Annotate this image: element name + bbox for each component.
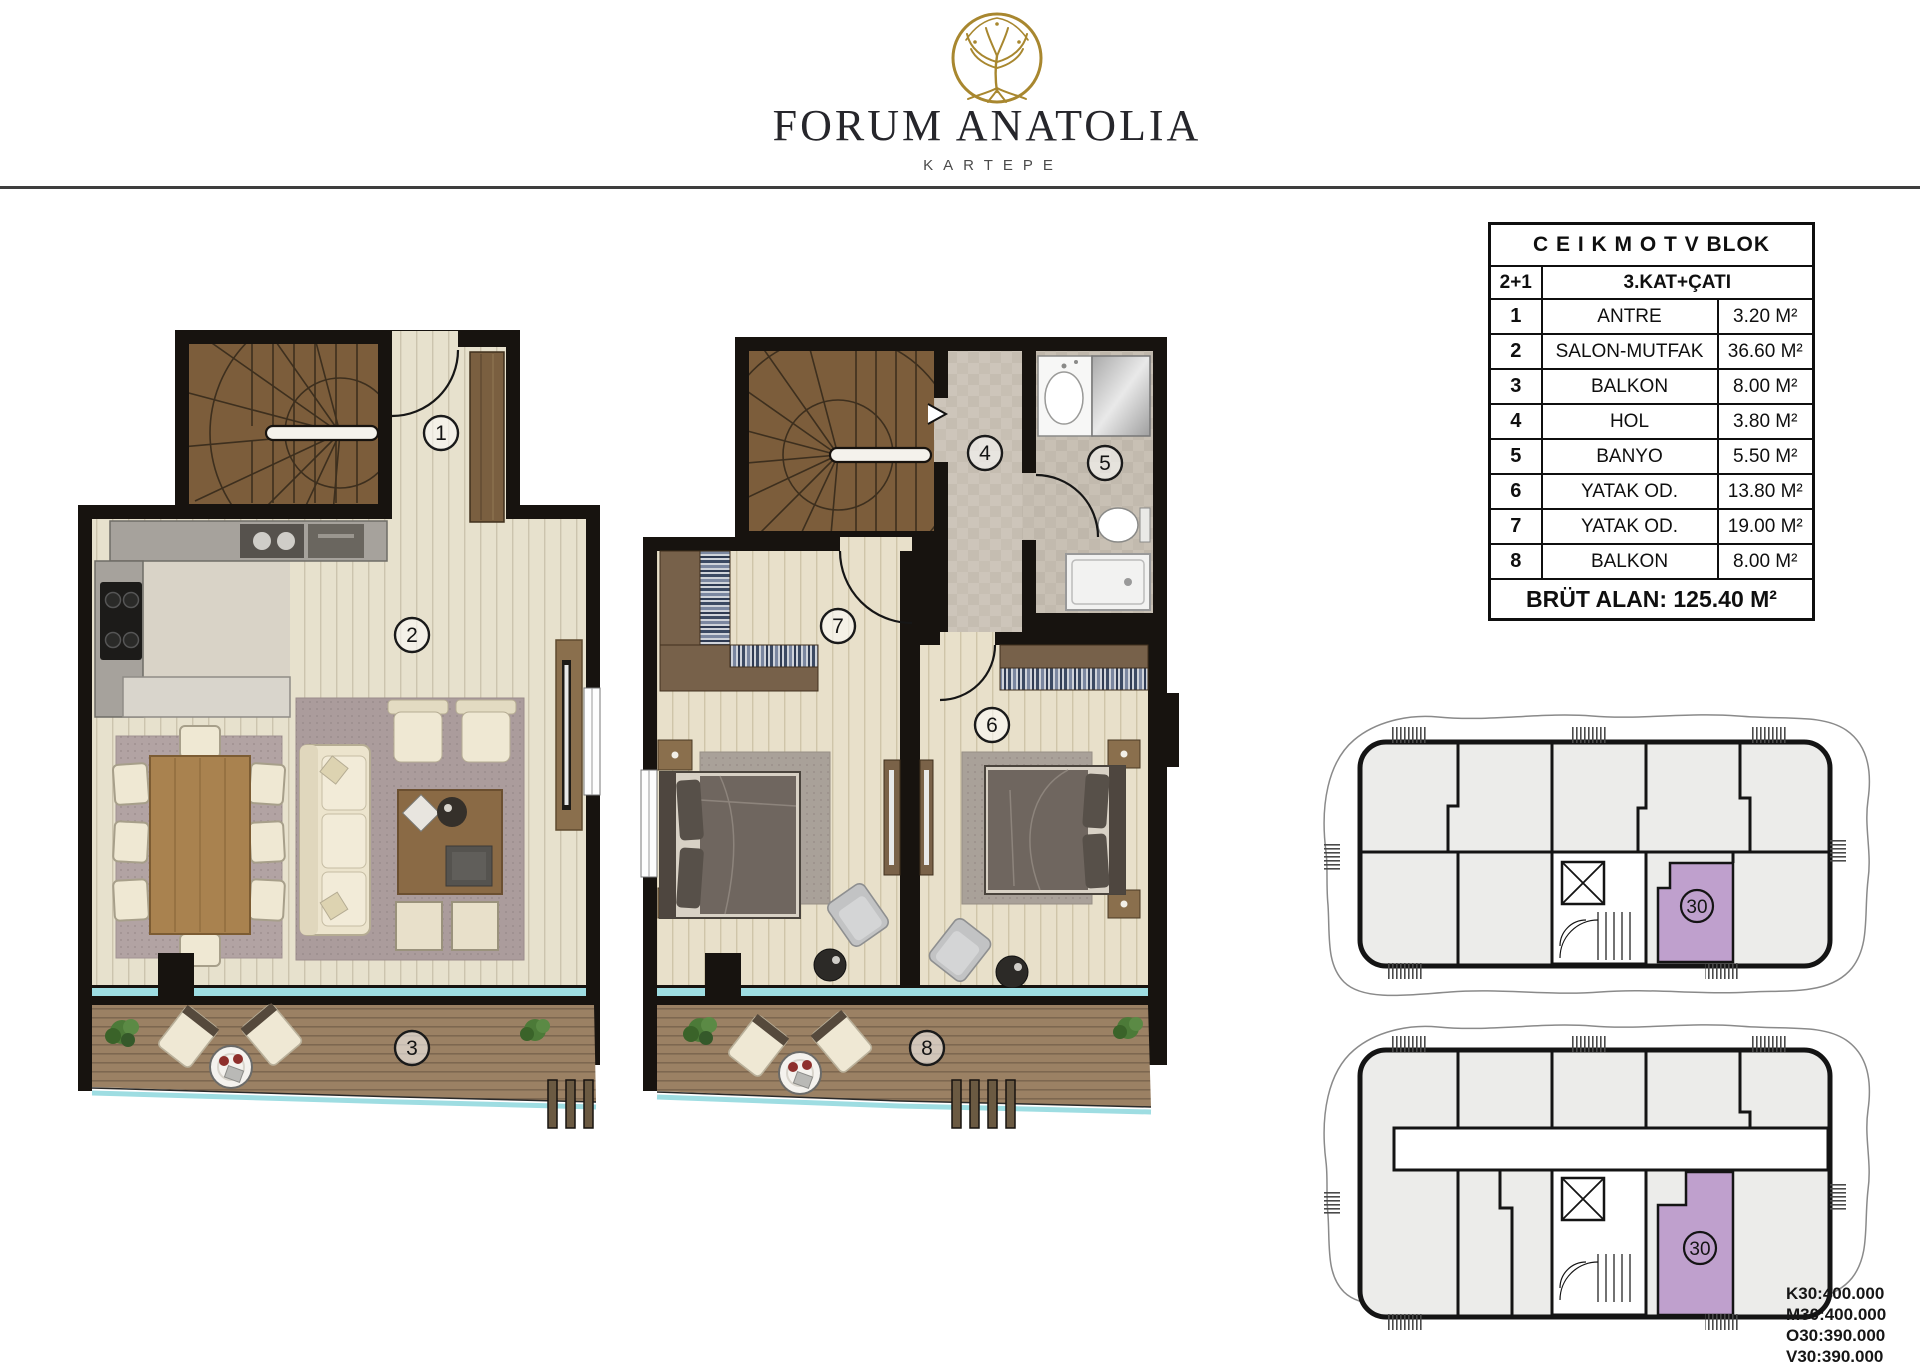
block-title: C E I K M O T V BLOK [1490,224,1814,267]
unit-areas-table: C E I K M O T V BLOK 2+1 3.KAT+ÇATI 1 AN… [1488,222,1815,621]
price-note-line: O30:390.000 [1786,1325,1886,1346]
room-label-5: 5 [1099,452,1111,475]
brand-title: FORUM ANATOLIA [773,101,1202,150]
room-label-3: 3 [406,1037,418,1060]
floor-plan-upper [641,300,1179,1128]
bed [985,740,1140,918]
window [641,770,657,877]
table-row: 4 HOL 3.80 M² [1490,404,1814,439]
brand-subtitle: KARTEPE [923,157,1063,174]
floor-plan-lower [78,278,600,1128]
table-row: 3 BALKON 8.00 M² [1490,369,1814,404]
unit-30-label: 30 [1686,897,1707,918]
roof-corridor [1394,1128,1828,1170]
toilet [1098,508,1150,542]
tv-unit [556,640,582,830]
table-row: 1 ANTRE 3.20 M² [1490,299,1814,334]
price-note-line: M30:400.000 [1786,1304,1886,1325]
room-label-7: 7 [832,615,844,638]
coffee-table [398,790,502,894]
elevator-icon [1562,862,1604,904]
room-label-6: 6 [986,714,998,737]
plan-canvas: FORUM ANATOLIA KARTEPE [0,0,1920,1358]
price-note-line: K30:400.000 [1786,1283,1886,1304]
table-row: 2 SALON-MUTFAK 36.60 M² [1490,334,1814,369]
price-notes: K30:400.000 M30:400.000 O30:390.000 V30:… [1786,1283,1886,1367]
side-table [996,956,1028,988]
armchair [456,700,516,762]
gross-area: BRÜT ALAN: 125.40 M² [1490,579,1814,620]
table-row: 5 BANYO 5.50 M² [1490,439,1814,474]
brochure-page: FORUM ANATOLIA KARTEPE [0,0,1920,1358]
price-note-line: V30:390.000 [1786,1346,1886,1367]
tree-of-life-logo-icon [953,14,1041,102]
header: FORUM ANATOLIA KARTEPE [0,14,1920,189]
armchair [388,700,448,762]
balcony-posts [548,1080,593,1128]
hall-floor [948,351,1022,632]
entry-door-opening [392,331,458,347]
pillar [705,953,741,1007]
entry-wardrobe [470,352,504,522]
room-label-4: 4 [979,442,991,465]
shower [1066,554,1150,610]
header-divider [0,186,1920,189]
table-row: 6 YATAK OD. 13.80 M² [1490,474,1814,509]
pillar [158,953,194,1007]
window [584,688,600,795]
table-row: 8 BALKON 8.00 M² [1490,544,1814,579]
elevator-icon [1562,1178,1604,1220]
room-label-2: 2 [406,624,418,647]
side-table [814,949,846,981]
mirror [1092,356,1150,436]
unit-type: 2+1 [1490,266,1542,299]
room-label-8: 8 [921,1037,933,1060]
unit-30-label: 30 [1689,1239,1710,1260]
table-row: 7 YATAK OD. 19.00 M² [1490,509,1814,544]
room-label-1: 1 [435,422,447,445]
key-plan-floor: 30 [1324,715,1869,996]
floor-label: 3.KAT+ÇATI [1542,266,1814,299]
